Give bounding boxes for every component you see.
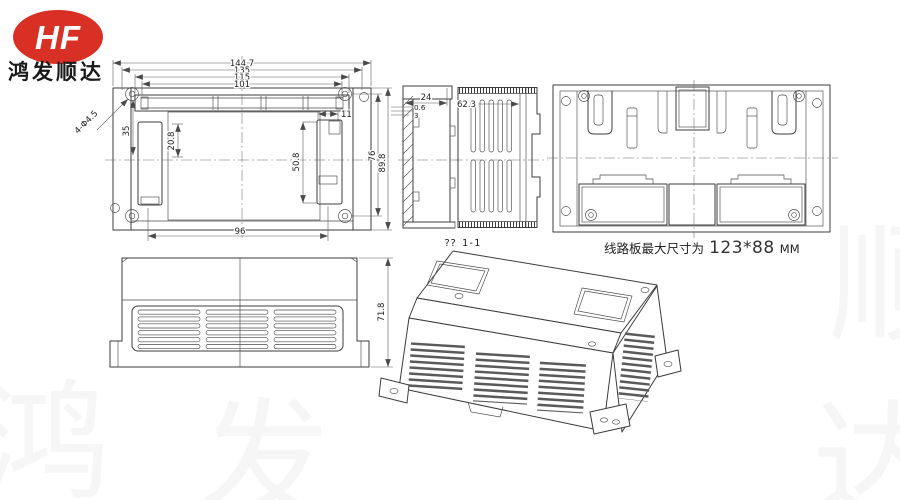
note-unit: MM [780, 242, 800, 256]
logo: HF 鸿发顺达 [8, 10, 104, 84]
dim-pcb-offset: 20.8 [167, 132, 177, 151]
dim-top-depth: 24 [421, 93, 432, 103]
rear-screw-holes [562, 91, 822, 221]
dim-hole-spacing-v: 76 [368, 151, 378, 162]
dim-height: 71.8 [377, 303, 387, 322]
watermark-char: 鸿 [0, 367, 110, 500]
dim-clip-width: 11 [341, 110, 352, 120]
rear-view [547, 80, 838, 238]
dim-inner-width: 101 [234, 80, 250, 90]
pcb-size-note: 线路板最大尺寸为 123*88 MM [604, 238, 800, 258]
louver-grille [138, 310, 336, 349]
logo-company-text: 鸿发顺达 [8, 60, 104, 84]
front-dimensions: 144.7 135 115 101 4-Φ4.5 35 20.8 11 50.8 [73, 59, 392, 241]
dim-slot-height-left: 35 [122, 126, 132, 137]
dim-hole-callout: 4-Φ4.5 [73, 109, 100, 136]
side-section-view: 24 0.6 3 [391, 86, 458, 228]
watermark-char: 发 [200, 385, 330, 500]
section-hatch [403, 96, 413, 226]
elevation-dimensions: 71.8 [359, 258, 393, 367]
dim-slot-height-right: 50.8 [292, 153, 302, 172]
dim-vent-width: 62.3 [457, 100, 476, 110]
drawing-svg: 鸿 发 顺 达 HF 鸿发顺达 [0, 0, 900, 500]
side-elevation-view: 71.8 [110, 258, 393, 367]
section-label: ?? 1-1 [444, 238, 480, 249]
note-prefix: 线路板最大尺寸为 [604, 241, 704, 256]
isometric-view [379, 251, 681, 434]
watermark-char: 顺 [828, 209, 900, 361]
section-1-1-dimensions: 62.3 [457, 100, 519, 110]
front-view: 144.7 135 115 101 4-Φ4.5 35 20.8 11 50.8 [73, 56, 392, 241]
vent-slots [471, 100, 512, 212]
dim-slot-spacing-bottom: 96 [235, 227, 246, 237]
drawing-sheet: 鸿 发 顺 达 HF 鸿发顺达 [0, 0, 900, 500]
logo-brand-text: HF [35, 19, 81, 56]
side-section-dimensions: 24 0.6 3 [391, 88, 447, 120]
note-value: 123*88 [709, 238, 775, 258]
dim-overall-height: 89.8 [378, 154, 388, 173]
section-1-1-view: 62.3 ?? 1-1 [444, 88, 548, 250]
watermark-char: 达 [812, 387, 900, 500]
dim-wall: 3 [414, 111, 419, 120]
